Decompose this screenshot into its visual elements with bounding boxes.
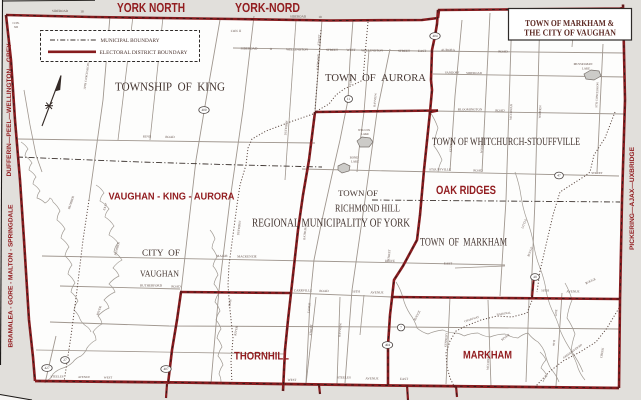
svg-text:LAKE: LAKE	[582, 67, 590, 71]
svg-text:SIDEROAD: SIDEROAD	[466, 71, 482, 75]
svg-text:ROAD: ROAD	[319, 289, 329, 293]
svg-text:TOWNSHIP OF KING: TOWNSHIP OF KING	[115, 80, 225, 94]
svg-text:WARDEN: WARDEN	[538, 105, 543, 119]
svg-text:CITY OF: CITY OF	[142, 248, 180, 258]
svg-text:407: 407	[163, 367, 168, 371]
svg-text:EAST: EAST	[418, 49, 426, 53]
svg-text:OAK RIDGES: OAK RIDGES	[436, 183, 496, 197]
svg-text:PICKERING—AJAX—UXBRIDGE: PICKERING—AJAX—UXBRIDGE	[629, 146, 636, 250]
svg-text:ROAD: ROAD	[498, 50, 508, 54]
svg-text:CON. II: CON. II	[231, 29, 241, 33]
svg-text:47: 47	[557, 174, 561, 178]
svg-text:404: 404	[432, 34, 437, 38]
svg-text:400: 400	[201, 108, 206, 112]
svg-text:YORK NORTH: YORK NORTH	[117, 0, 185, 15]
svg-text:REGIONAL MUNICIPALITY OF YORK: REGIONAL MUNICIPALITY OF YORK	[252, 216, 410, 230]
svg-text:AVENUE: AVENUE	[78, 375, 90, 379]
svg-text:EAST: EAST	[444, 262, 452, 266]
svg-text:SIDEROAD: SIDEROAD	[241, 47, 258, 51]
svg-text:MARKHAM: MARKHAM	[463, 350, 512, 362]
svg-text:BRAMALEA - GORE - MALTON - SPR: BRAMALEA - GORE - MALTON - SPRINGDALE	[8, 205, 15, 348]
svg-text:VAUGHAN: VAUGHAN	[140, 269, 179, 279]
svg-text:DUFFERIN—PEEL—WELLINGTON—GREY: DUFFERIN—PEEL—WELLINGTON—GREY	[6, 43, 13, 177]
svg-text:SIDEROAD: SIDEROAD	[52, 9, 69, 13]
svg-text:STREET: STREET	[326, 48, 338, 52]
svg-text:RICHMOND HILL: RICHMOND HILL	[335, 204, 400, 215]
svg-text:WELLINGTON: WELLINGTON	[361, 49, 383, 53]
svg-text:ROAD: ROAD	[473, 169, 483, 173]
svg-text:STEELES: STEELES	[337, 376, 351, 380]
svg-text:18: 18	[318, 15, 322, 19]
svg-text:ROAD: ROAD	[165, 135, 175, 139]
svg-text:THORNHILL: THORNHILL	[234, 351, 289, 363]
svg-text:404: 404	[385, 343, 390, 347]
svg-text:16TH: 16TH	[541, 289, 549, 293]
svg-text:STEELES: STEELES	[51, 375, 64, 379]
svg-text:AURORA: AURORA	[441, 48, 456, 52]
svg-text:LINE: LINE	[554, 309, 558, 316]
svg-text:MUSSELMAN: MUSSELMAN	[574, 62, 594, 66]
svg-text:27: 27	[63, 358, 67, 362]
svg-text:TOWN OF: TOWN OF	[338, 188, 378, 198]
svg-text:11: 11	[347, 97, 351, 101]
svg-text:WELLINGTON: WELLINGTON	[286, 48, 308, 52]
svg-text:TOWN OF WHITCHURCH-STOUFFVILLE: TOWN OF WHITCHURCH-STOUFFVILLE	[432, 136, 580, 148]
svg-text:48: 48	[533, 275, 537, 279]
svg-text:TOWN OF AURORA: TOWN OF AURORA	[325, 73, 426, 84]
svg-text:LAKE: LAKE	[361, 132, 369, 136]
svg-text:XII: XII	[14, 25, 18, 29]
svg-text:YORK-NORD: YORK-NORD	[235, 0, 300, 15]
svg-text:TOWN OF MARKHAM &: TOWN OF MARKHAM &	[525, 18, 614, 28]
svg-text:7: 7	[400, 326, 402, 330]
svg-text:ELECTORAL DISTRICT BOUNDARY: ELECTORAL DISTRICT BOUNDARY	[100, 50, 188, 56]
svg-text:MUNICIPAL BOUNDARY: MUNICIPAL BOUNDARY	[101, 38, 160, 44]
svg-text:ROAD: ROAD	[495, 109, 505, 113]
svg-text:EAST: EAST	[400, 377, 408, 381]
svg-text:STREET: STREET	[591, 171, 602, 175]
svg-text:16TH: 16TH	[352, 290, 360, 294]
svg-text:427: 427	[44, 366, 49, 370]
svg-text:ROAD: ROAD	[171, 285, 181, 289]
svg-text:KING: KING	[143, 135, 152, 139]
svg-text:TOWN OF MARKHAM: TOWN OF MARKHAM	[420, 237, 507, 249]
svg-text:WEST: WEST	[104, 376, 113, 380]
svg-text:WEST: WEST	[347, 48, 356, 52]
svg-text:THE CITY OF VAUGHAN: THE CITY OF VAUGHAN	[524, 28, 616, 38]
svg-text:LAKE: LAKE	[351, 160, 359, 164]
svg-text:AVENUE: AVENUE	[370, 291, 383, 295]
svg-text:AVENUE: AVENUE	[365, 377, 378, 381]
svg-text:STOUFFVILLE: STOUFFVILLE	[429, 168, 451, 172]
svg-text:MACKENZIE: MACKENZIE	[237, 255, 256, 259]
svg-text:AVENUE: AVENUE	[566, 290, 579, 294]
svg-text:STREET: STREET	[317, 34, 322, 45]
svg-text:CARRVILLE: CARRVILLE	[294, 289, 312, 293]
svg-text:RUTHERFORD: RUTHERFORD	[140, 284, 163, 288]
svg-text:MAJOR: MAJOR	[216, 254, 228, 258]
svg-text:STREET: STREET	[398, 49, 410, 53]
svg-text:BLOOMINGTON: BLOOMINGTON	[458, 108, 483, 112]
svg-text:VANDORF: VANDORF	[445, 71, 460, 75]
svg-text:WEST: WEST	[288, 378, 297, 382]
svg-text:VAUGHAN - KING - AURORA: VAUGHAN - KING - AURORA	[109, 192, 235, 203]
svg-text:SIDEROAD: SIDEROAD	[290, 15, 307, 19]
svg-text:18: 18	[80, 10, 84, 14]
